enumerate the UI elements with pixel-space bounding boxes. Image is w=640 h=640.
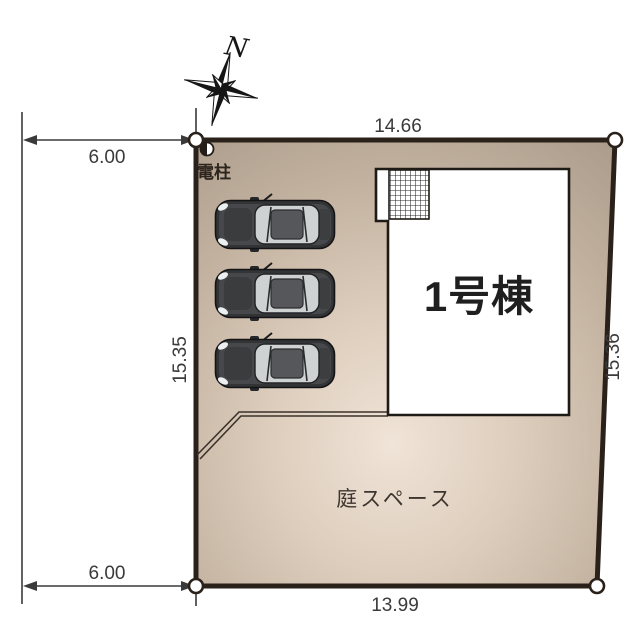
car-2 [216,263,335,321]
corner-marker-bottom-left [189,579,203,593]
garden-label: 庭スペース [336,488,453,511]
corner-marker-top-right [608,133,622,147]
dimension-line-top-offset [23,135,195,145]
dimension-label-bottom-width: 13.99 [371,595,419,616]
car-3 [216,333,335,391]
dimension-label-right-depth: 15.36 [603,333,624,381]
site-plan-drawing: 1号棟 電柱 庭スペース [0,0,640,640]
building-entrance-hatch [389,170,429,219]
dimension-label-top-width: 14.66 [374,116,422,137]
corner-marker-bottom-right [590,579,604,593]
car-1 [216,194,335,252]
building-label: 1号棟 [424,273,534,320]
site-plan-canvas: 1号棟 電柱 庭スペース [0,0,640,640]
dimension-label-left-depth: 15.35 [170,336,191,384]
dimension-label-bottom-offset: 6.00 [89,563,126,584]
utility-pole-label: 電柱 [197,162,231,182]
dimension-label-top-offset: 6.00 [89,147,126,168]
north-compass-icon [175,43,267,135]
corner-marker-top-left [189,133,203,147]
north-label: N [222,31,252,65]
